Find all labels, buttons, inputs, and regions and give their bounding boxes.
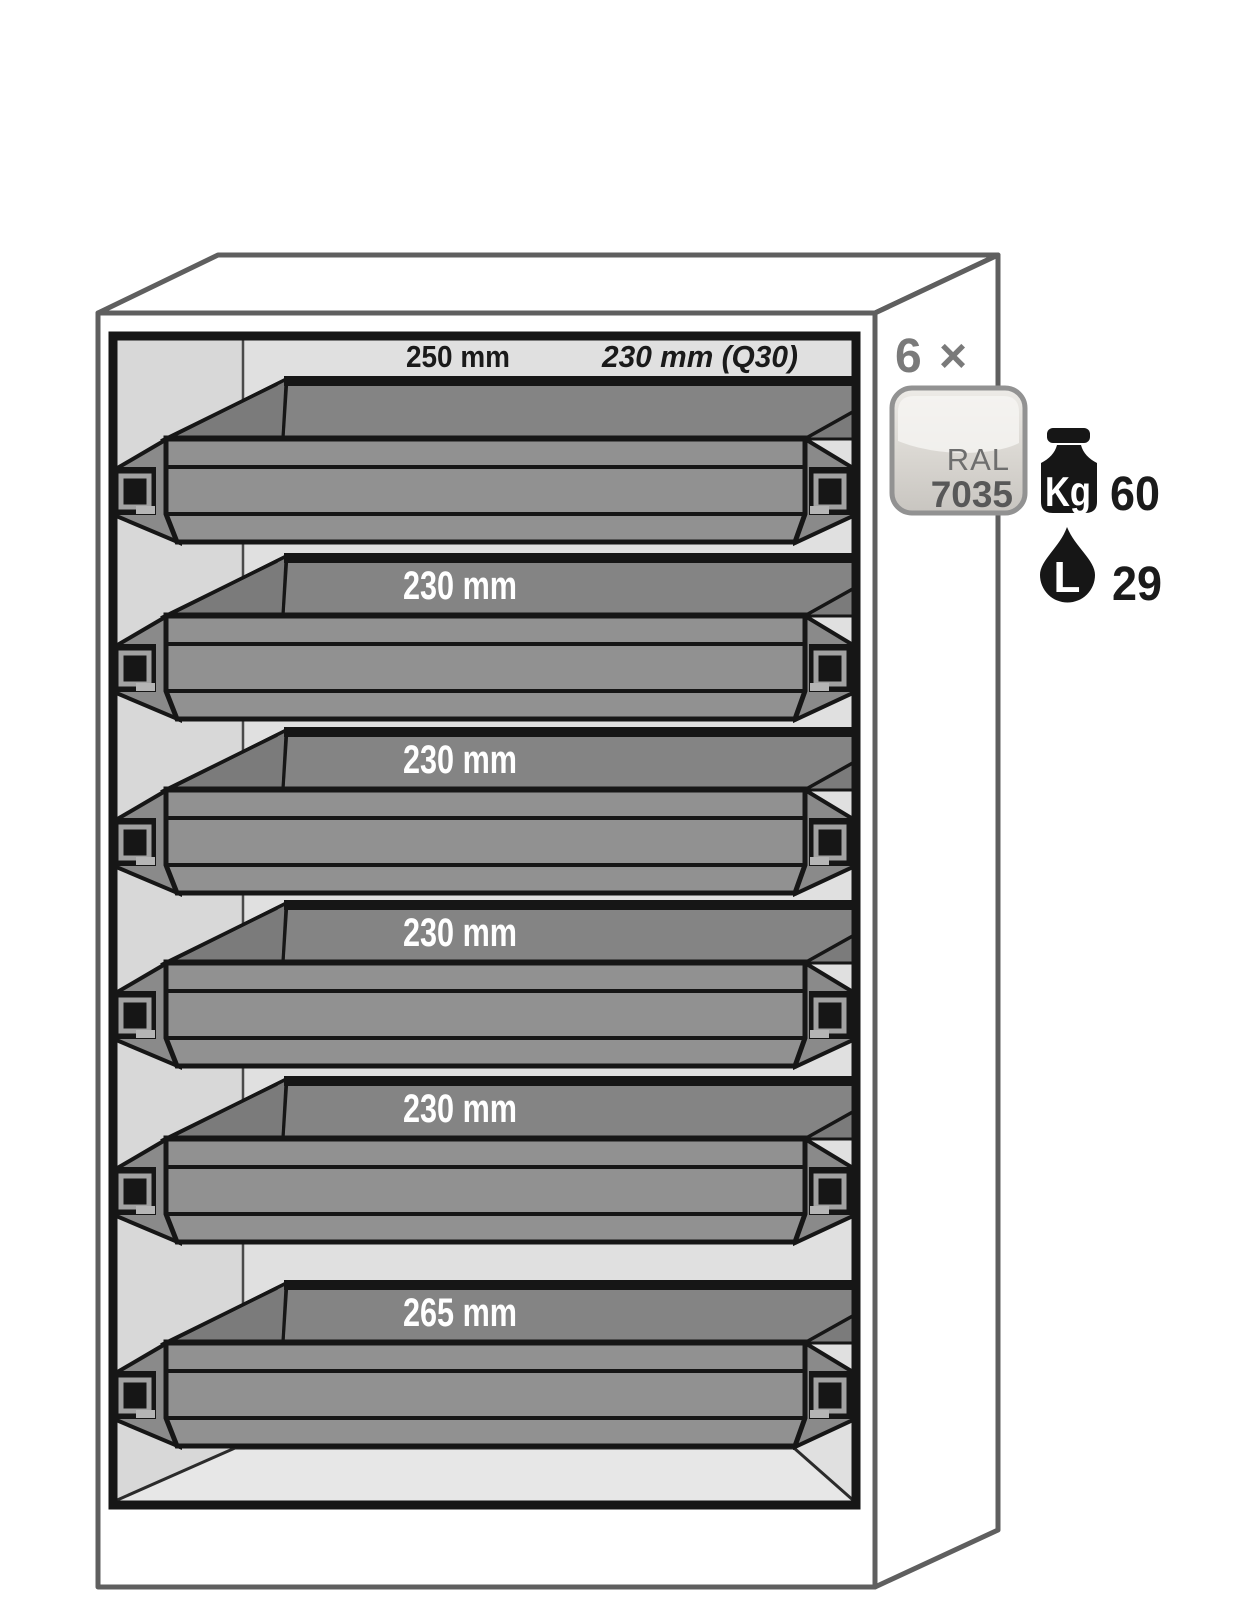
drawer-quantity-label: 6 × <box>895 330 969 383</box>
drawer-depth-label: 230 mm <box>403 564 517 608</box>
ral-color-swatch: RAL 7035 <box>892 388 1025 515</box>
interior-floor <box>113 1449 856 1504</box>
drawer-depth-label: 230 mm <box>403 911 517 955</box>
cabinet-top-face <box>98 255 998 313</box>
cabinet-diagram: 250 mm 230 mm (Q30) 230 mm 230 mm 230 mm… <box>0 0 1241 1624</box>
dimension-header: 250 mm 230 mm (Q30) <box>406 339 798 374</box>
drawer-depth-label: 230 mm <box>403 1087 517 1131</box>
volume-capacity: L 29 <box>1040 527 1162 611</box>
load-capacity-value: 60 <box>1110 468 1160 521</box>
drawer-depth-label: 265 mm <box>403 1291 517 1335</box>
cabinet-interior: 250 mm 230 mm (Q30) 230 mm 230 mm 230 mm… <box>112 336 856 1505</box>
load-capacity: Kg 60 <box>1041 428 1160 521</box>
volume-capacity-value: 29 <box>1112 558 1162 611</box>
ral-code: 7035 <box>931 474 1013 515</box>
ral-label: RAL <box>947 442 1010 477</box>
header-front-depth-label: 250 mm <box>406 339 510 374</box>
diagram-page: 250 mm 230 mm (Q30) 230 mm 230 mm 230 mm… <box>0 0 1241 1624</box>
kg-unit-label: Kg <box>1045 468 1091 515</box>
kg-weight-icon: Kg <box>1041 428 1097 515</box>
liter-unit-label: L <box>1054 553 1081 602</box>
header-alt-depth-label: 230 mm (Q30) <box>601 339 798 374</box>
drawer-depth-label: 230 mm <box>403 738 517 782</box>
liter-drop-icon: L <box>1040 527 1095 603</box>
